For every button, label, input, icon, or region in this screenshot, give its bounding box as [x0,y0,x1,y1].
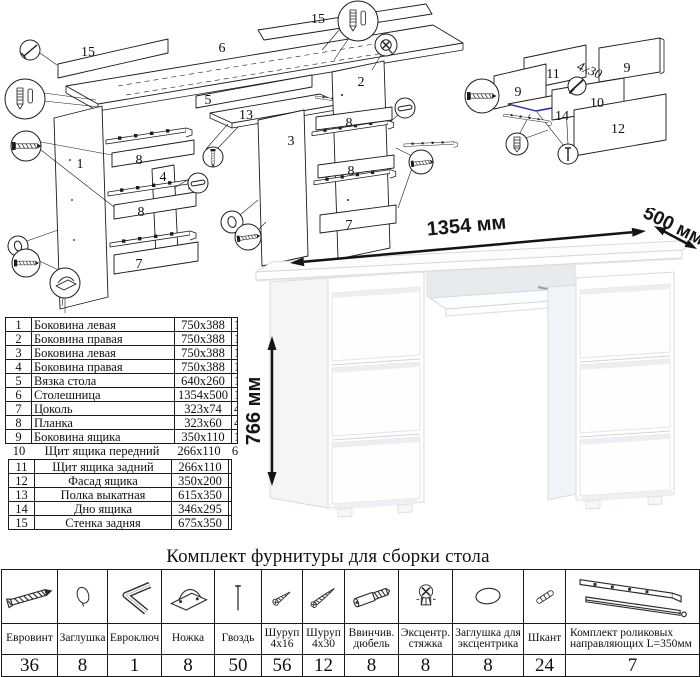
part-label-3: 3 [288,134,295,149]
desk-foot [398,504,412,513]
part-qty: 6 [225,444,245,459]
part-size: 615x350 [172,488,229,502]
part-size: 350x110 [175,430,232,444]
part-num: 15 [9,516,35,530]
parts-row: 14Дно ящика346x2956 [9,502,232,516]
nail-icon [214,570,261,623]
width-dimension-label: 1354 мм [426,211,507,240]
parts-table-row-10: 10 Щит ящика передний 266x110 6 [5,444,245,459]
screw-dowel-icon [344,570,398,623]
desk-dimension-drawing: 1354 мм 500 мм 766 мм [240,208,700,545]
part-qty: 1 [232,318,238,332]
cap-icon [57,570,107,623]
foot-icon [161,570,214,623]
part-label-5: 5 [205,93,212,108]
part-qty: 1 [232,388,238,402]
part-name: Щит ящика задний [35,460,172,474]
parts-row: 13Полка выкатная615x3501 [9,488,232,502]
part-qty: 6 [229,502,232,516]
part-num: 1 [6,318,32,332]
part-label-2: 2 [358,75,365,90]
part-qty: 4 [232,416,238,430]
hardware-name: Шкант [523,623,565,654]
part-qty: 12 [232,430,238,444]
parts-row: 7Цоколь323x744 [6,402,238,416]
hardware-name: Шуруп 4х30 [302,623,344,654]
part-size: 323x74 [175,402,232,416]
hardware-name: Заглушка [57,623,107,654]
hardware-qty: 1 [107,654,161,676]
parts-table-upper: 1Боковина левая750x38812Боковина правая7… [5,317,238,444]
desk-foot [338,508,352,517]
part-label-15: 15 [81,45,95,60]
cam-cap-icon [452,570,523,623]
part-label-6: 6 [219,41,226,56]
parts-row: 9Боковина ящика350x11012 [6,430,238,444]
parts-row: 4Боковина правая750x3881 [6,360,238,374]
hardware-qty: 8 [398,654,452,676]
part-size: 750x388 [175,332,232,346]
hex-key-icon [107,570,161,623]
part-label-15b: 15 [311,12,325,27]
part-name: Боковина правая [32,360,175,374]
hardware-qty: 12 [302,654,344,676]
parts-row: 8Планка323x604 [6,416,238,430]
parts-table-lower: 11Щит ящика задний266x110612Фасад ящика3… [8,459,232,530]
parts-row: 2Боковина правая750x3881 [6,332,238,346]
parts-row: 3Боковина левая750x3881 [6,346,238,360]
part-name: Дно ящика [35,502,172,516]
part-num: 8 [6,416,32,430]
part-num: 11 [9,460,35,474]
part-num: 7 [6,402,32,416]
part-label-8d: 8 [348,164,355,179]
part-name: Цоколь [32,402,175,416]
part-qty: 6 [229,474,232,488]
part-qty: 1 [229,488,232,502]
part-size: 323x60 [175,416,232,430]
euro-screw-icon [2,570,57,623]
wood-dowel-icon [523,570,565,623]
part-name: Боковина правая [32,332,175,346]
part-num: 2 [6,332,32,346]
hardware-name: Заглушка для эксцентрика [452,623,523,654]
part-label-9b: 9 [515,85,522,100]
part-size: 266x110 [172,460,229,474]
part-qty: 1 [232,374,238,388]
part-name: Боковина левая [32,318,175,332]
part-label-7a: 7 [136,257,143,272]
part-name: Боковина ящика [32,430,175,444]
part-num: 6 [6,388,32,402]
parts-row: 6Столешница1354x5001 [6,388,238,402]
hardware-name: Эксцентр. стяжка [398,623,452,654]
height-dimension-label: 766 мм [243,377,265,446]
part-label-1: 1 [77,157,84,172]
part-name: Столешница [32,388,175,402]
part-qty: 1 [232,360,238,374]
hardware-name: Евровинт [2,623,57,654]
part-name: Полка выкатная [35,488,172,502]
part-size: 750x388 [175,318,232,332]
part-name: Боковина левая [32,346,175,360]
desk-foot [648,496,662,505]
part-num: 9 [6,430,32,444]
part-qty: 1 [232,332,238,346]
hardware-qty: 7 [565,654,699,676]
screw-4x30-icon [302,570,344,623]
part-size: 266x110 [173,444,225,459]
part-num: 4 [6,360,32,374]
part-label-9a: 9 [624,61,631,76]
part-qty: 2 [229,516,232,530]
part-num: 14 [9,502,35,516]
hardware-name: Ввинчив. дюбель [344,623,398,654]
part-label-4: 4 [160,170,167,185]
part-num: 5 [6,374,32,388]
part-name: Щит ящика передний [31,444,173,459]
part-num: 12 [9,474,35,488]
part-name: Фасад ящика [35,474,172,488]
part-size: 750x388 [175,360,232,374]
hardware-name: Комплект роликовых направляющих L=350мм [565,623,699,654]
screw-4x16-icon [261,570,302,623]
exploded-drawer-diagram: 11 9 9 10 14 12 4х30 [465,38,666,164]
desk-right-pedestal [548,272,674,509]
hardware-qty: 50 [214,654,261,676]
parts-list: 1Боковина левая750x38812Боковина правая7… [5,317,245,530]
hardware-qty: 8 [57,654,107,676]
part-num: 13 [9,488,35,502]
hardware-qty: 8 [161,654,214,676]
cam-lock-icon [398,570,452,623]
part-label-14: 14 [555,109,569,124]
hardware-kit-table: Евровинт Заглушка Евроключ Ножка Гвоздь … [1,569,700,677]
parts-row: 12Фасад ящика350x2006 [9,474,232,488]
part-size: 640x260 [175,374,232,388]
assembly-instruction-page: 15 6 15 5 13 2 3 1 8 4 8 7 8 8 7 [0,0,700,677]
part-qty: 4 [232,402,238,416]
part-label-13: 13 [239,108,253,123]
part-size: 350x200 [172,474,229,488]
part-size: 750x388 [175,346,232,360]
part-size: 1354x500 [175,388,232,402]
part-qty: 6 [229,460,232,474]
hardware-name: Шуруп 4х16 [261,623,302,654]
part-label-8c: 8 [346,116,353,131]
part-name: Планка [32,416,175,430]
hardware-qty: 56 [261,654,302,676]
part-name: Вязка стола [32,374,175,388]
desk-left-pedestal [270,272,424,517]
drawer-slide-rail [503,108,552,131]
part-num: 3 [6,346,32,360]
parts-row: 5Вязка стола640x2601 [6,374,238,388]
part-label-11: 11 [546,67,559,82]
drawer-slides-icon [565,570,699,623]
hardware-qty: 8 [452,654,523,676]
parts-row: 1Боковина левая750x3881 [6,318,238,332]
hardware-qty: 8 [344,654,398,676]
hardware-name: Евроключ [107,623,161,654]
plank-8a [112,140,194,167]
part-size: 346x295 [172,502,229,516]
parts-row: 11Щит ящика задний266x1106 [9,460,232,474]
hardware-name: Ножка [161,623,214,654]
hardware-qty: 36 [2,654,57,676]
hardware-kit-title: Комплект фурнитуры для сборки стола [0,546,656,568]
part-qty: 1 [232,346,238,360]
part-num: 10 [7,444,31,459]
part-label-12: 12 [611,122,625,137]
hardware-name: Гвоздь [214,623,261,654]
part-label-8a: 8 [136,153,143,168]
hardware-qty: 24 [523,654,565,676]
part-label-8b: 8 [138,205,145,220]
part-size: 675x350 [172,516,229,530]
parts-row: 15Стенка задняя675x3502 [9,516,232,530]
desk-foot [586,500,600,509]
part-label-10: 10 [590,96,604,111]
part-name: Стенка задняя [35,516,172,530]
